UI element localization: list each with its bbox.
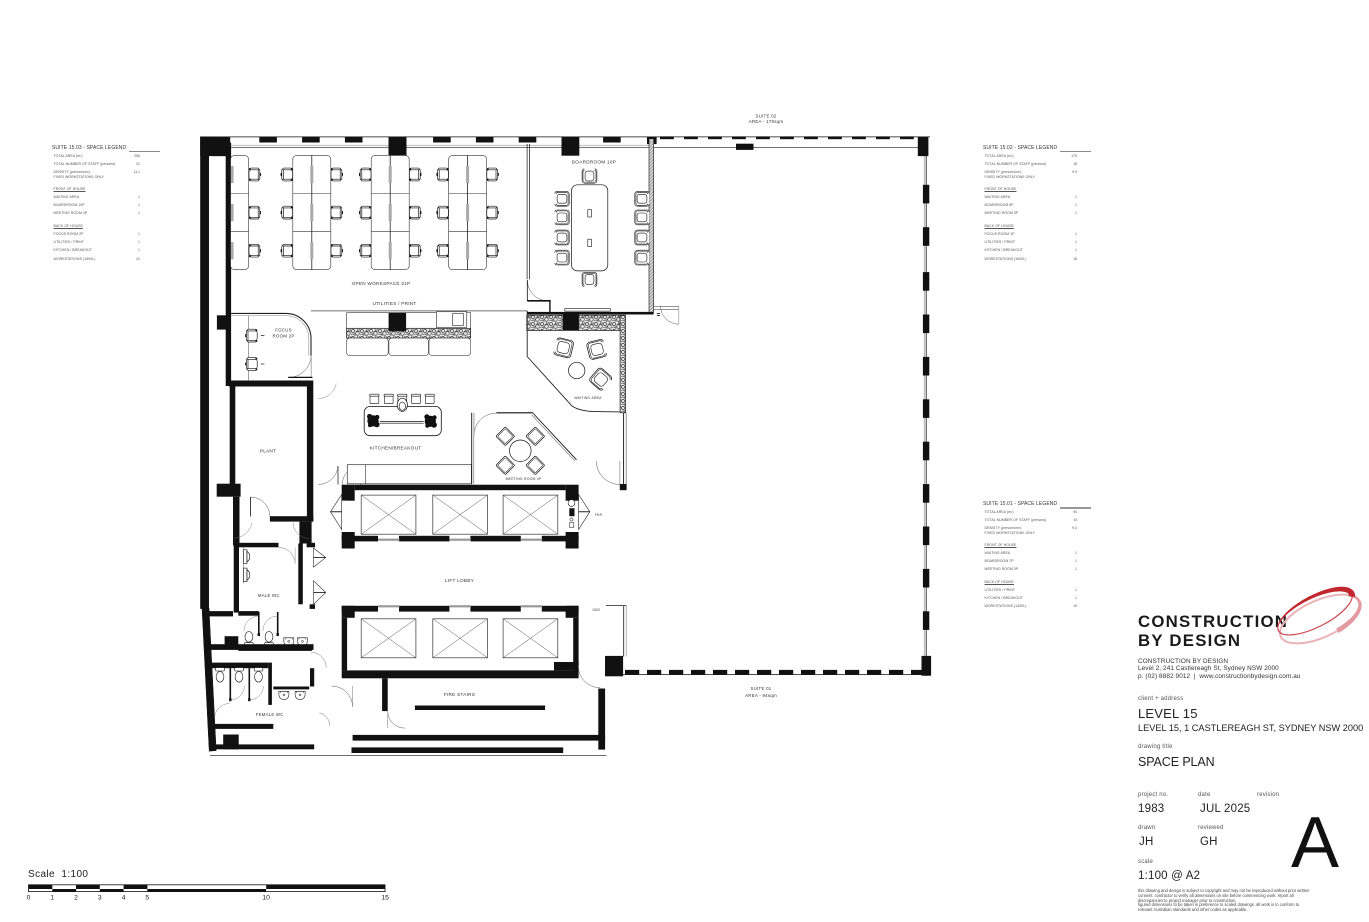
svg-text:SUITE 01: SUITE 01: [750, 686, 771, 691]
svg-text:1: 1: [50, 895, 54, 902]
svg-text:3: 3: [98, 895, 102, 902]
svg-text:1500: 1500: [592, 608, 600, 612]
svg-text:15: 15: [381, 895, 389, 902]
svg-text:SUITE 02: SUITE 02: [755, 113, 776, 118]
svg-text:4: 4: [122, 895, 126, 902]
svg-text:10: 10: [262, 895, 270, 902]
svg-text:BOARDROOM 10P: BOARDROOM 10P: [572, 160, 616, 165]
svg-text:0: 0: [27, 895, 31, 902]
svg-text:2: 2: [74, 895, 78, 902]
svg-text:5: 5: [145, 895, 149, 902]
svg-text:FHR: FHR: [595, 513, 603, 517]
svg-text:WAITING AREA: WAITING AREA: [574, 396, 602, 400]
svg-text:MEETING ROOM 4P: MEETING ROOM 4P: [506, 477, 542, 481]
svg-text:AREA - 94sqm: AREA - 94sqm: [745, 693, 777, 698]
svg-text:AREA - 179sqm: AREA - 179sqm: [749, 119, 784, 124]
